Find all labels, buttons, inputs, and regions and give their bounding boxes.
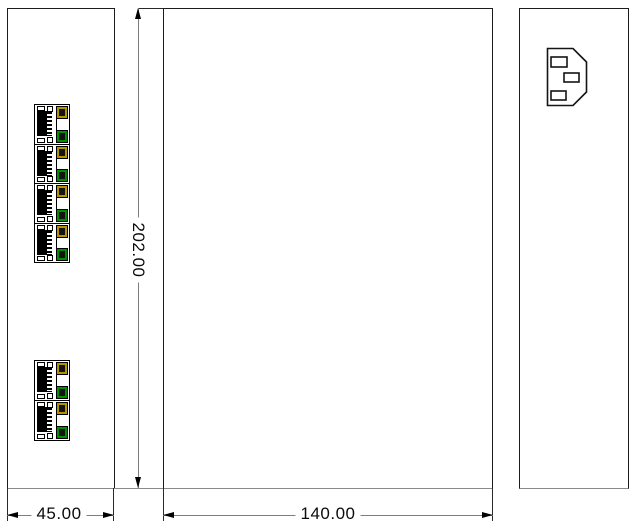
port-mount-tab [47,402,53,408]
port-mount-tab [37,146,45,151]
port-mount-tab [47,393,53,399]
port-mount-tab [37,394,45,399]
yellow-led-icon [57,226,67,237]
dimension-label-front-width: 140.00 [296,504,361,524]
port-mount-tab [47,146,53,152]
rj45-port-icon [34,104,70,145]
green-led-icon [57,427,67,438]
front-view-outline [163,8,493,489]
port-pin-teeth [47,112,52,135]
port-mount-tab [37,402,45,407]
dim-140-arrow-left-icon [163,512,174,518]
green-led-icon [57,387,67,398]
port-mount-tab [47,255,53,261]
port-mount-tab [37,106,45,111]
port-mount-tab [37,185,45,190]
port-pin-teeth [47,408,52,431]
dim-202-bottom-extension-line [114,488,163,489]
yellow-led-icon [57,403,67,414]
technical-drawing-canvas: 202.00 45.00 140.00 [0,0,637,528]
port-mount-tab [47,433,53,439]
port-mount-tab [37,138,45,143]
dimension-label-height: 202.00 [128,218,148,283]
port-mount-tab [37,434,45,439]
dim-140-arrow-right-icon [482,512,493,518]
rj45-port-icon [34,223,70,264]
port-mount-tab [37,362,45,367]
dim-45-arrow-right-icon [103,512,114,518]
port-mount-tab [47,185,53,191]
port-mount-tab [47,216,53,222]
port-pin-teeth [47,152,52,175]
upper-port-group [34,104,70,263]
yellow-led-icon [57,147,67,158]
yellow-led-icon [57,363,67,374]
green-led-icon [57,210,67,221]
dim-202-top-extension-line [138,8,163,9]
port-mount-tab [47,106,53,112]
port-mount-tab [37,217,45,222]
port-pin-teeth [47,231,52,254]
green-led-icon [57,170,67,181]
dimension-label-left-width: 45.00 [31,504,86,524]
port-mount-tab [47,362,53,368]
dim-45-arrow-left-icon [7,512,18,518]
power-inlet-c14-icon [546,47,588,107]
port-pin-teeth [47,191,52,214]
green-led-icon [57,131,67,142]
rj45-port-icon [34,400,70,441]
dim-202-arrow-down-icon [135,477,141,488]
green-led-icon [57,249,67,260]
port-mount-tab [47,225,53,231]
port-mount-tab [47,176,53,182]
rj45-port-icon [34,144,70,185]
port-mount-tab [37,256,45,261]
dim-202-arrow-up-icon [135,8,141,19]
port-mount-tab [47,137,53,143]
rj45-port-icon [34,360,70,401]
port-mount-tab [37,225,45,230]
rj45-port-icon [34,183,70,224]
port-pin-teeth [47,368,52,391]
port-mount-tab [37,177,45,182]
lower-port-group [34,360,70,441]
yellow-led-icon [57,107,67,118]
yellow-led-icon [57,186,67,197]
